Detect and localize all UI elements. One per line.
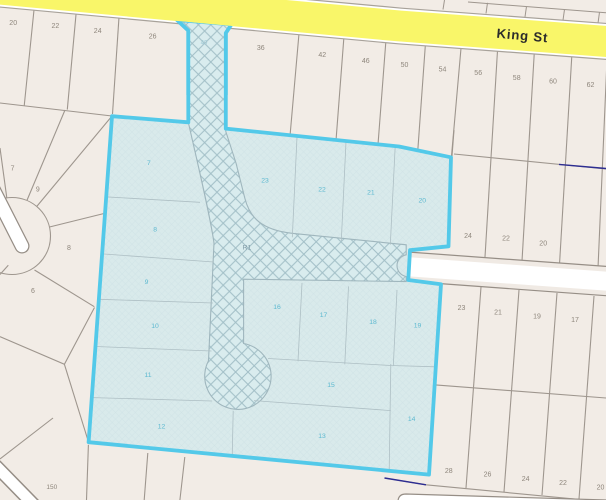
svg-text:15: 15 [327,382,335,389]
svg-text:50: 50 [401,62,409,69]
svg-text:24: 24 [94,28,102,35]
svg-text:8: 8 [67,245,71,252]
svg-text:23: 23 [261,178,269,185]
svg-text:21: 21 [494,310,502,317]
svg-text:28: 28 [445,468,453,475]
svg-text:14: 14 [408,416,416,423]
svg-text:R1: R1 [243,245,252,252]
svg-text:23: 23 [458,305,466,312]
svg-text:24: 24 [522,476,530,483]
svg-text:24: 24 [464,233,472,240]
svg-text:7: 7 [11,166,15,173]
svg-text:21: 21 [367,190,375,197]
svg-text:19: 19 [533,314,541,321]
svg-text:20: 20 [539,241,547,248]
svg-text:22: 22 [52,23,60,30]
svg-text:36: 36 [257,45,265,52]
svg-text:13: 13 [318,433,326,440]
svg-text:17: 17 [571,317,579,324]
svg-text:62: 62 [587,82,595,89]
svg-text:58: 58 [513,75,521,82]
svg-text:18: 18 [369,319,377,326]
svg-text:40: 40 [201,41,208,47]
svg-text:26: 26 [484,472,492,479]
svg-text:22: 22 [559,480,567,487]
svg-text:12: 12 [158,424,166,431]
svg-text:54: 54 [439,67,447,74]
svg-text:22: 22 [318,186,326,193]
svg-text:6: 6 [31,288,35,295]
svg-text:7: 7 [147,160,151,167]
svg-text:26: 26 [149,33,157,40]
svg-text:22: 22 [502,236,510,243]
svg-text:150: 150 [46,484,57,491]
svg-text:20: 20 [9,20,17,27]
svg-text:10: 10 [151,323,159,330]
svg-text:42: 42 [318,52,326,59]
svg-text:16: 16 [273,304,281,311]
svg-text:56: 56 [474,70,482,77]
svg-text:20: 20 [419,198,427,205]
svg-text:46: 46 [362,58,370,65]
svg-text:8: 8 [153,227,157,234]
svg-text:9: 9 [36,187,40,194]
svg-text:17: 17 [320,312,328,319]
svg-text:9: 9 [145,279,149,286]
svg-text:20: 20 [597,485,605,492]
svg-text:19: 19 [414,323,422,330]
svg-text:11: 11 [144,372,151,379]
svg-text:60: 60 [549,79,557,86]
